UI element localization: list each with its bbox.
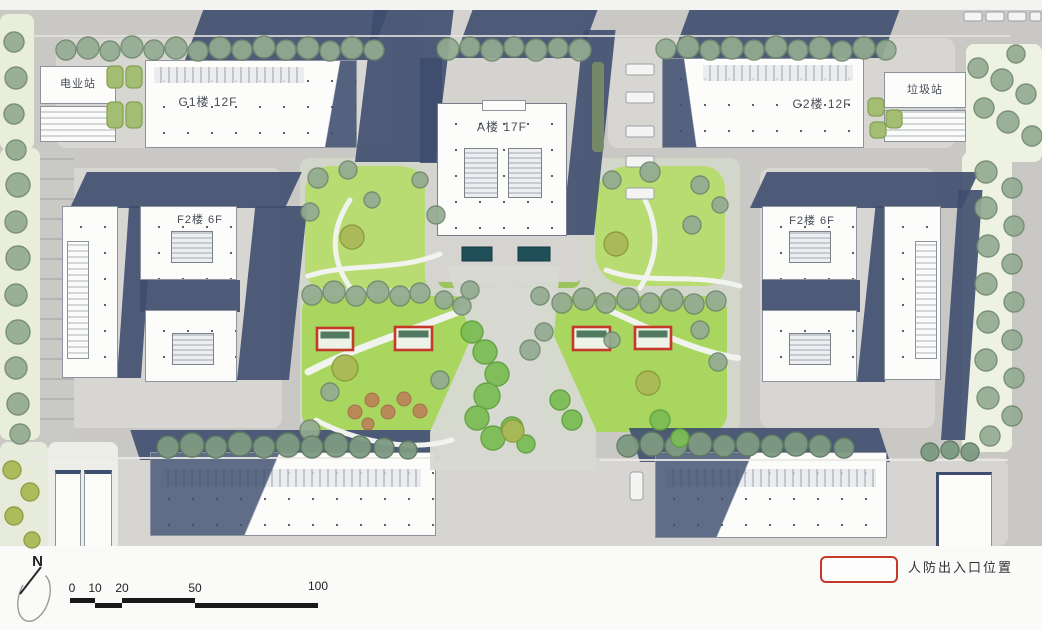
building-south-right-podium — [655, 452, 887, 538]
building-core — [789, 231, 831, 263]
floorplan-detail — [67, 241, 89, 359]
legend-label-pd-entrance: 人防出入口位置 — [908, 561, 1038, 575]
label-building-a: A楼 17F — [442, 121, 562, 134]
shadow — [70, 172, 302, 208]
planting-strip-left — [0, 148, 40, 440]
lawn-upper-left — [305, 166, 438, 288]
scale-bar-segment — [95, 603, 122, 608]
label-building-f2-right: F2楼 6F — [762, 215, 862, 227]
scale-bar-segment — [70, 598, 95, 603]
building-core — [789, 333, 831, 365]
site-plan: 0 10 20 50 100 人防出入口位置 电业站 G1楼 12F A楼 17… — [0, 0, 1042, 630]
scale-tick-50: 50 — [185, 581, 205, 595]
label-building-f2-left: F2楼 6F — [148, 214, 252, 226]
building-f2-left-south — [145, 310, 237, 382]
lawn-lower-right — [535, 296, 727, 432]
scale-bar-segment — [195, 603, 318, 608]
planting-strip-right-top — [966, 44, 1042, 162]
scale-tick-10: 10 — [85, 581, 105, 595]
lawn-lower-left — [302, 296, 488, 430]
building-south-left-podium — [150, 452, 436, 536]
building-small-southeast — [936, 472, 992, 548]
building-right-slab — [884, 206, 941, 380]
scale-tick-0: 0 — [62, 581, 82, 595]
building-core — [171, 231, 213, 263]
planting-strip-left-top — [0, 14, 34, 150]
building-f2-right-south — [762, 310, 857, 382]
tower-entry-canopy — [482, 100, 526, 111]
lawn-upper-right — [595, 166, 725, 286]
label-building-g1: G1楼 12F — [146, 96, 270, 109]
building-small-southwest-a — [55, 470, 81, 548]
building-core — [172, 333, 214, 365]
roof-shadow — [656, 453, 886, 537]
page-margin-top — [0, 0, 1042, 10]
label-north: N — [28, 554, 48, 571]
scale-bar-segment — [122, 598, 195, 603]
shadow — [140, 280, 240, 312]
floorplan-detail — [915, 241, 937, 359]
label-building-g2: G2楼 12F — [760, 98, 884, 111]
tower-core — [508, 148, 542, 198]
label-power-station: 电业站 — [40, 78, 116, 90]
building-garbage-station-annex — [884, 110, 966, 142]
legend-swatch-pd-entrance — [820, 556, 898, 583]
label-garbage-station: 垃圾站 — [884, 84, 966, 96]
building-small-southwest-b — [84, 470, 112, 548]
scale-tick-100: 100 — [303, 579, 333, 593]
roof-shadow — [151, 453, 435, 535]
shadow — [762, 280, 860, 312]
building-power-station-annex — [40, 106, 116, 142]
shadow — [750, 172, 979, 208]
building-left-slab — [62, 206, 118, 378]
planting-strip-bottom-left — [0, 442, 48, 558]
scale-tick-20: 20 — [112, 581, 132, 595]
tower-core — [464, 148, 498, 198]
